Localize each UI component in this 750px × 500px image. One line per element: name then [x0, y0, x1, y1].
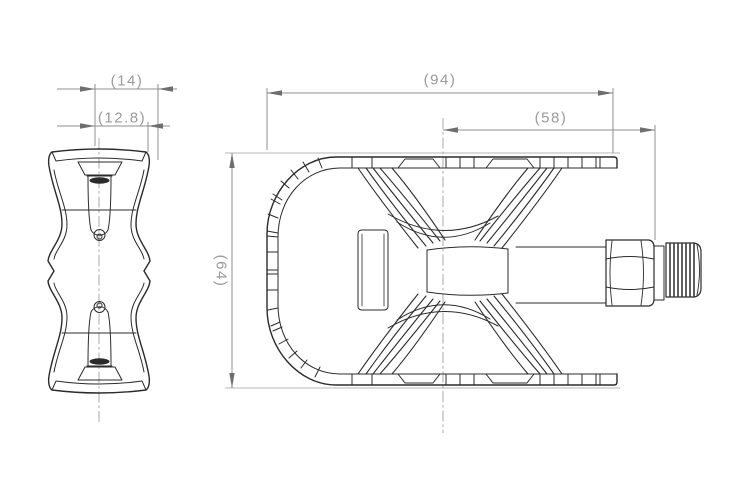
dimension-label-94: (94): [424, 72, 457, 89]
centerlines: [99, 118, 443, 433]
dimension-label-58: (58): [535, 110, 568, 127]
top-view: [267, 157, 701, 385]
dimension-label-64: (64): [213, 255, 230, 288]
dimension-arrows: [80, 86, 655, 388]
ground-lines: [225, 153, 620, 388]
dimension-label-14: (14): [111, 73, 144, 90]
dimension-lines: [57, 84, 655, 388]
drawing-sheet: (14) (12.8) (94) (58) (64): [0, 0, 750, 500]
dimension-label-12-8: (12.8): [98, 110, 146, 127]
